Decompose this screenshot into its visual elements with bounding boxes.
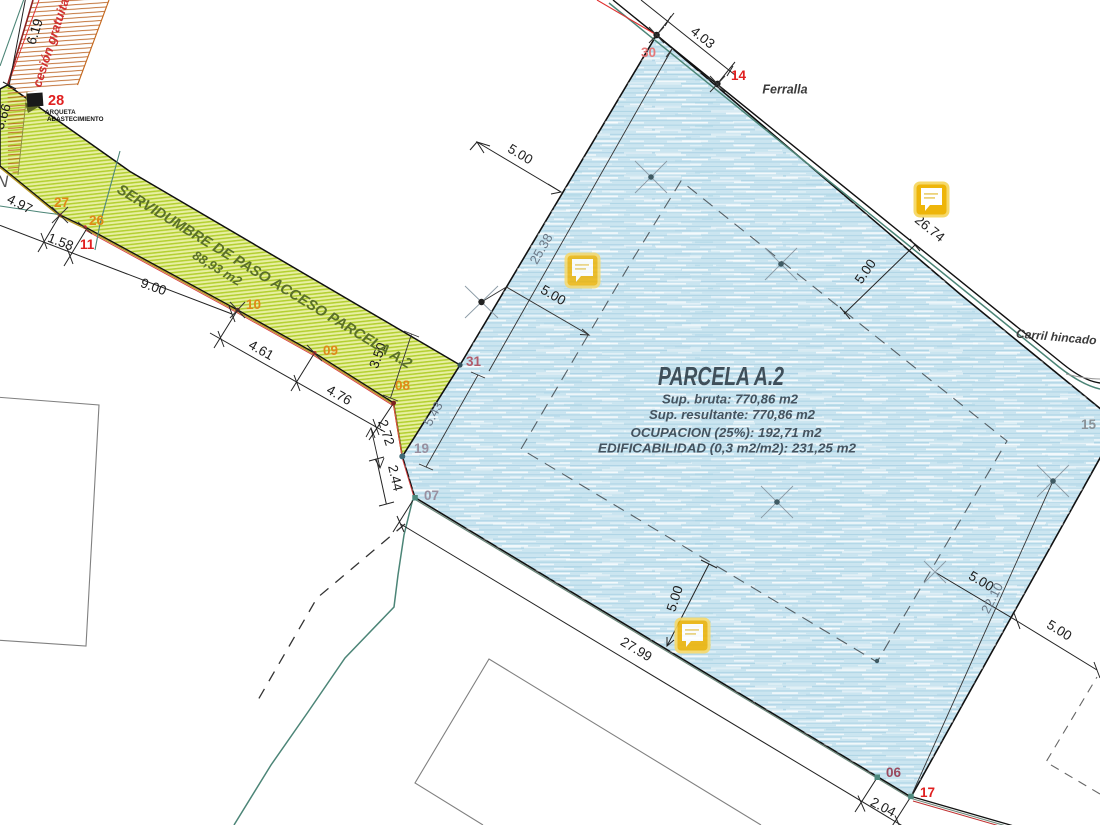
svg-text:Sup. resultante: 770,86 m2: Sup. resultante: 770,86 m2 [649, 407, 816, 422]
svg-text:07: 07 [424, 488, 439, 503]
svg-text:4.97: 4.97 [5, 191, 35, 216]
svg-text:ABASTECIMIENTO: ABASTECIMIENTO [47, 116, 104, 123]
svg-text:ARQUETA: ARQUETA [45, 109, 76, 116]
svg-text:2.44: 2.44 [385, 463, 406, 492]
svg-text:31: 31 [466, 354, 482, 369]
svg-text:11: 11 [80, 237, 95, 252]
svg-text:15: 15 [1081, 417, 1097, 432]
svg-text:PARCELA A.2: PARCELA A.2 [658, 361, 784, 391]
svg-text:09: 09 [323, 343, 338, 358]
svg-text:28: 28 [48, 93, 64, 109]
svg-text:06: 06 [886, 765, 902, 780]
svg-text:OCUPACION (25%): 192,71 m2: OCUPACION (25%): 192,71 m2 [631, 425, 823, 440]
svg-text:14: 14 [731, 68, 747, 83]
svg-text:30: 30 [641, 45, 656, 60]
svg-text:Ferralla: Ferralla [762, 83, 807, 97]
svg-text:4.03: 4.03 [688, 23, 718, 51]
svg-text:2.04: 2.04 [868, 794, 899, 820]
svg-text:10: 10 [246, 297, 261, 312]
svg-text:5.00: 5.00 [1044, 617, 1074, 644]
svg-text:4.76: 4.76 [324, 382, 354, 408]
svg-text:26: 26 [89, 213, 105, 228]
svg-text:4.61: 4.61 [246, 337, 276, 363]
svg-text:EDIFICABILIDAD (0,3 m2/m2): 23: EDIFICABILIDAD (0,3 m2/m2): 231,25 m2 [598, 441, 857, 456]
svg-text:27: 27 [54, 195, 69, 210]
svg-text:08: 08 [395, 378, 411, 393]
svg-text:2.72: 2.72 [375, 418, 397, 448]
svg-text:Carril hincado: Carril hincado [1016, 327, 1098, 348]
svg-text:N: N [0, 172, 9, 191]
svg-text:5.00: 5.00 [505, 141, 535, 167]
svg-text:Sup. bruta: 770,86 m2: Sup. bruta: 770,86 m2 [662, 392, 799, 407]
svg-text:19: 19 [414, 441, 429, 456]
svg-text:9.00: 9.00 [139, 275, 169, 298]
svg-text:17: 17 [920, 785, 935, 800]
svg-text:1.58: 1.58 [46, 230, 76, 253]
